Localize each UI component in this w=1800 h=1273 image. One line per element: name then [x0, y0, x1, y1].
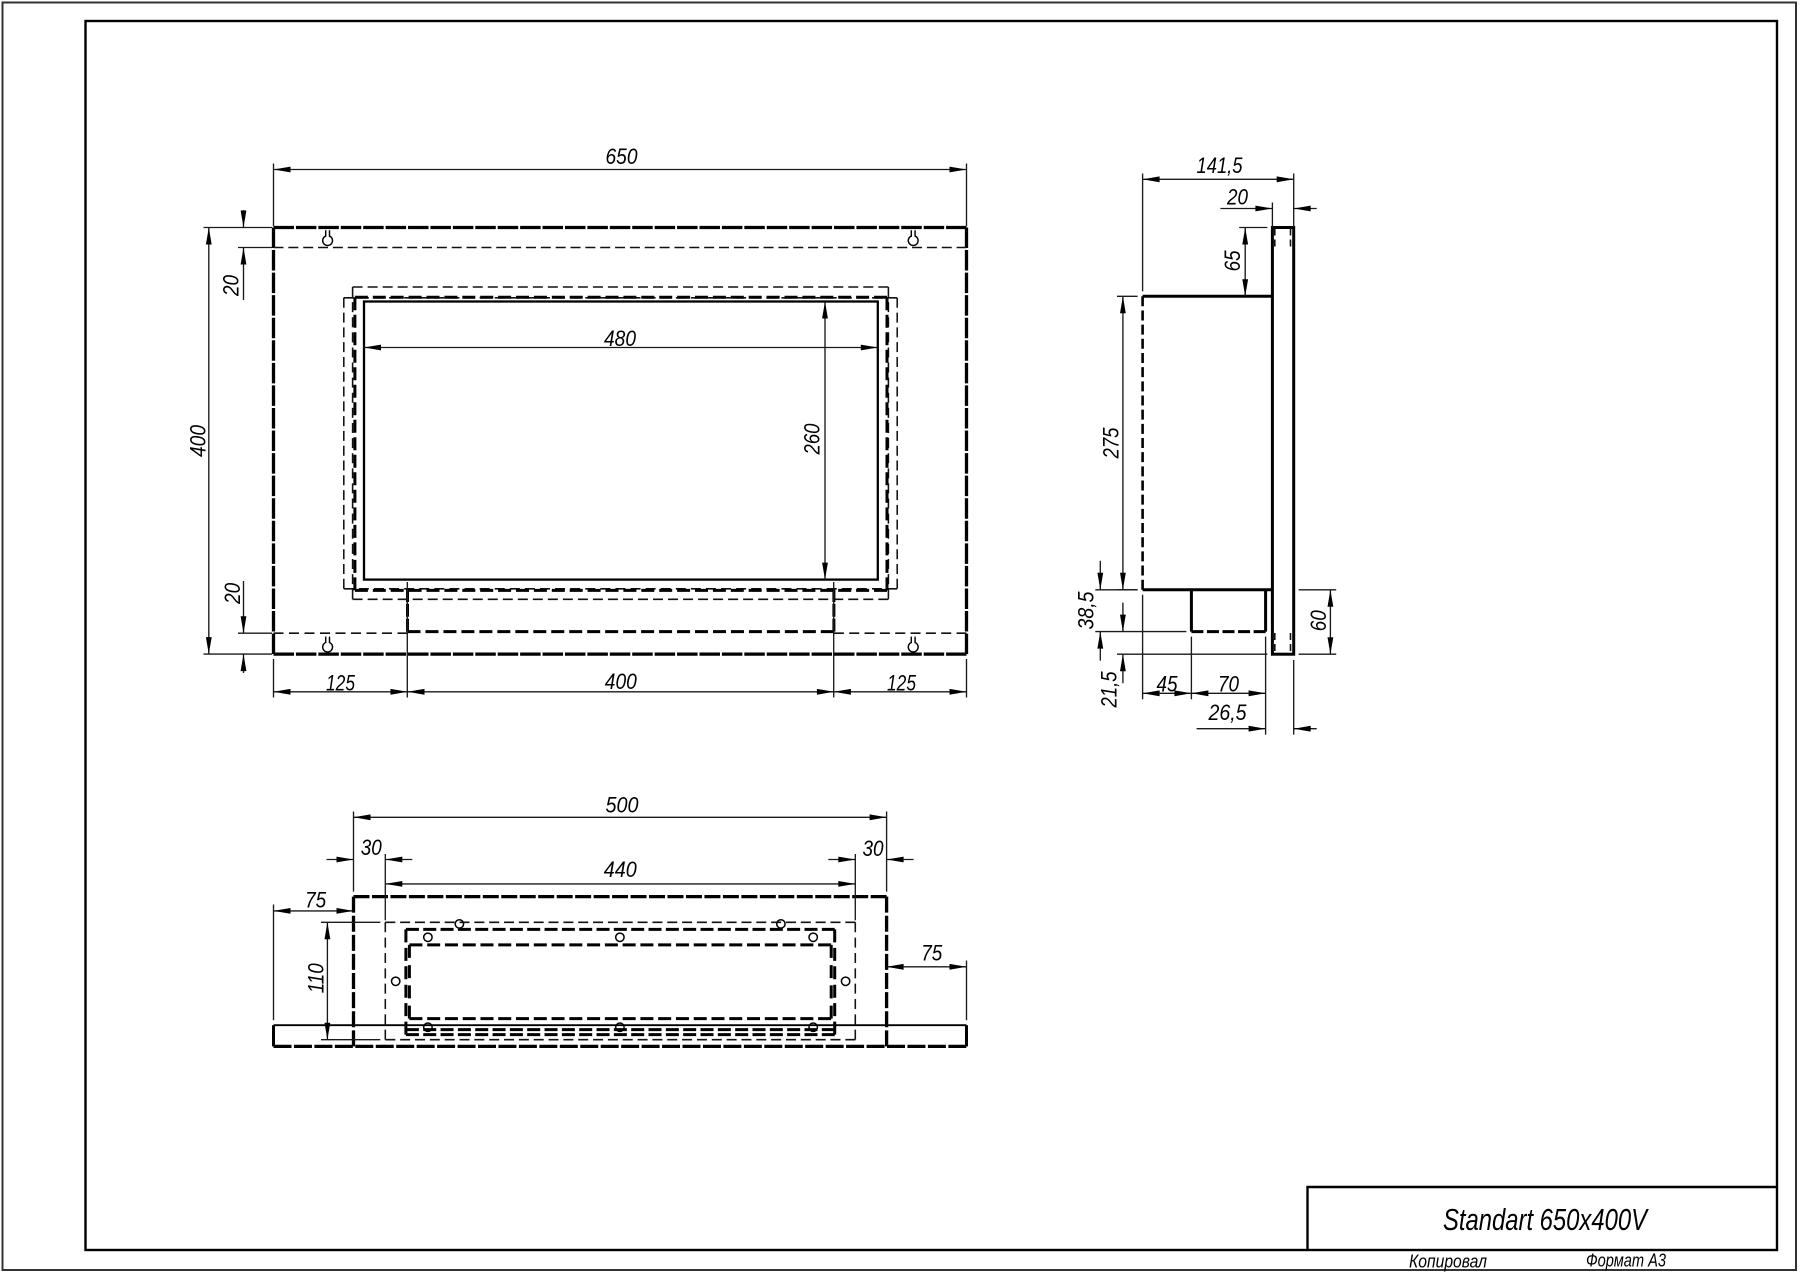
svg-text:38,5: 38,5	[1074, 591, 1099, 630]
svg-text:400: 400	[186, 424, 211, 457]
svg-text:400: 400	[605, 669, 638, 694]
svg-text:30: 30	[361, 835, 383, 860]
svg-text:500: 500	[606, 793, 640, 818]
svg-text:Standart 650x400V: Standart 650x400V	[1443, 1202, 1650, 1237]
svg-text:110: 110	[304, 963, 329, 994]
svg-text:480: 480	[604, 326, 637, 351]
svg-text:141,5: 141,5	[1197, 153, 1244, 178]
svg-text:20: 20	[1226, 185, 1249, 210]
svg-text:125: 125	[326, 671, 356, 696]
svg-text:60: 60	[1306, 610, 1331, 632]
svg-text:Копировал: Копировал	[1409, 1251, 1487, 1271]
svg-text:125: 125	[887, 671, 917, 696]
svg-text:Формат A3: Формат A3	[1586, 1250, 1666, 1270]
svg-text:75: 75	[305, 887, 327, 912]
svg-text:650: 650	[606, 144, 639, 169]
svg-text:70: 70	[1218, 672, 1240, 697]
svg-text:20: 20	[219, 274, 244, 297]
svg-text:30: 30	[863, 836, 885, 861]
svg-text:260: 260	[800, 423, 825, 455]
svg-text:440: 440	[604, 857, 638, 882]
svg-text:65: 65	[1220, 250, 1245, 272]
svg-text:45: 45	[1157, 672, 1179, 697]
svg-text:20: 20	[220, 582, 245, 605]
svg-text:75: 75	[921, 940, 943, 965]
svg-text:275: 275	[1099, 427, 1124, 459]
svg-text:26,5: 26,5	[1208, 700, 1248, 725]
svg-text:21,5: 21,5	[1097, 671, 1122, 708]
